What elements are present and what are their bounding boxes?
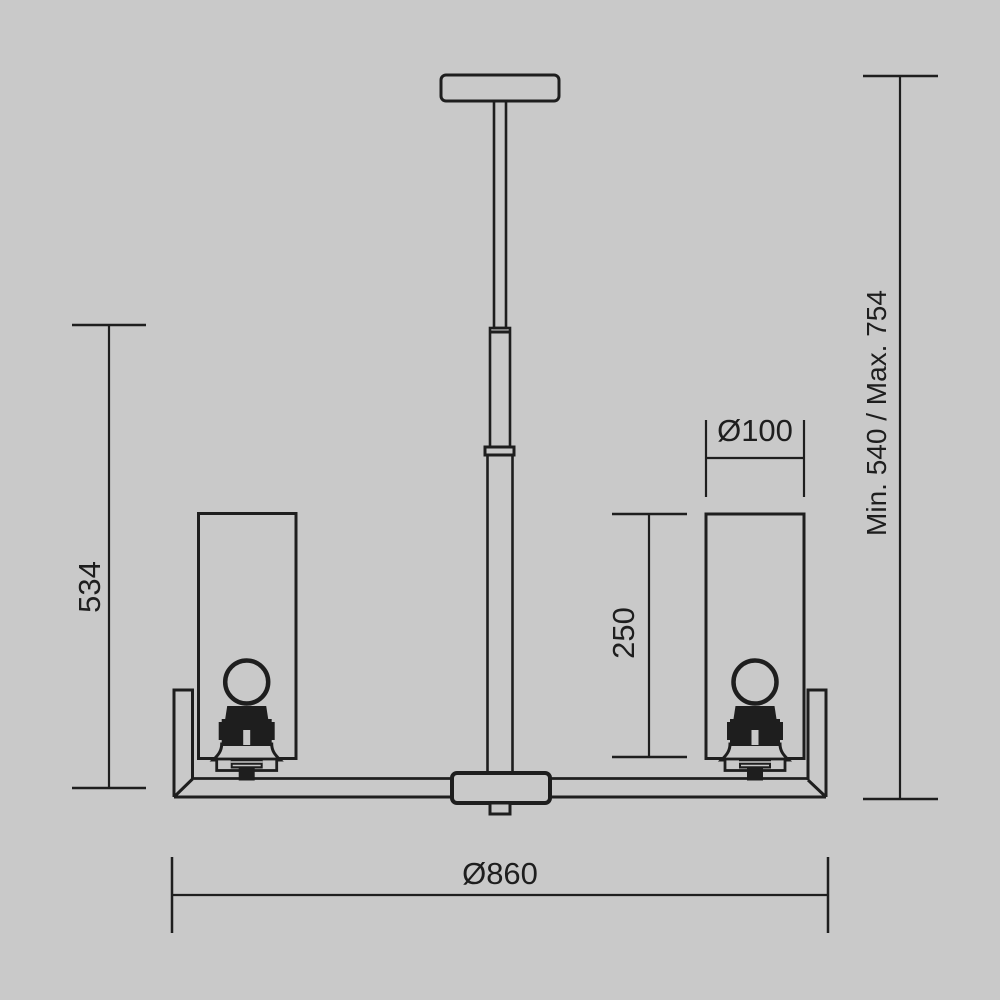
dimension-label-min-max: Min. 540 / Max. 754 bbox=[861, 290, 892, 536]
dimension-label-fixture-diameter: Ø860 bbox=[462, 856, 538, 891]
dimension-label-534: 534 bbox=[72, 561, 107, 613]
chandelier-dimension-diagram: 534 Min. 540 / Max. 754 Ø100 250 Ø860 bbox=[0, 0, 1000, 1000]
technical-drawing-canvas: 534 Min. 540 / Max. 754 Ø100 250 Ø860 bbox=[0, 0, 1000, 1000]
hub-body bbox=[452, 773, 550, 803]
hub-bottom-nub bbox=[490, 803, 510, 814]
background bbox=[0, 0, 1000, 1000]
dimension-label-shade-diameter: Ø100 bbox=[717, 413, 793, 448]
dimension-label-250: 250 bbox=[606, 607, 641, 659]
